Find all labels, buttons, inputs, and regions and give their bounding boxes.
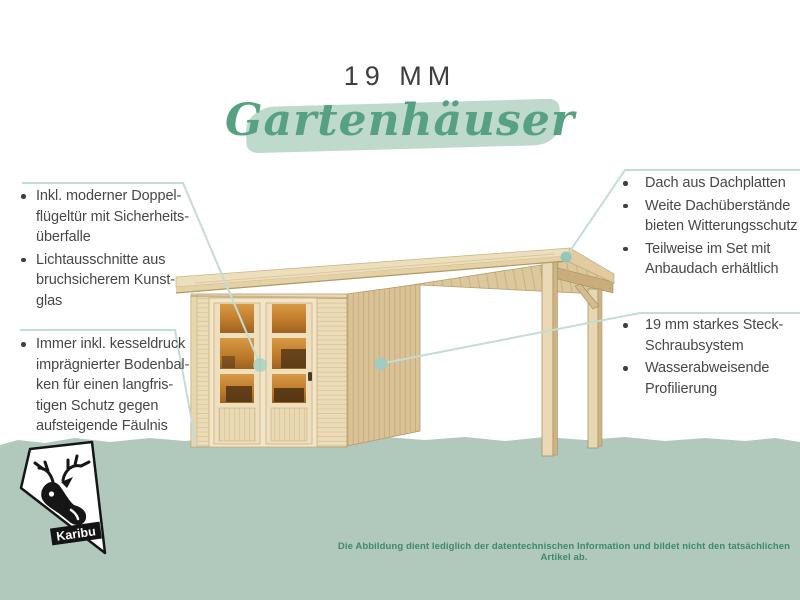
bullet-dot-icon bbox=[618, 173, 645, 194]
callout-dot-sidewall bbox=[375, 358, 388, 371]
feature-line: Dach aus Dachplatten bbox=[645, 175, 786, 191]
feature-line: Wasserabweisende bbox=[645, 360, 769, 376]
feature-text: 19 mm starkes Steck- Schraubsystem bbox=[645, 315, 783, 356]
feature-line: Inkl. moderner Doppel- bbox=[36, 188, 181, 204]
callout-left-top: Inkl. moderner Doppel- flügeltür mit Sic… bbox=[16, 186, 216, 313]
feature-line: aufsteigende Fäulnis bbox=[36, 418, 168, 434]
ground-band bbox=[0, 437, 800, 600]
feature-text: Wasserabweisende Profilierung bbox=[645, 358, 769, 399]
disclaimer-text: Die Abbildung dient lediglich der datent… bbox=[334, 541, 794, 563]
bullet-dot-icon bbox=[618, 239, 645, 280]
infographic-canvas: Karibu 19 MM Gartenhäuser Inkl. moderner… bbox=[0, 0, 800, 600]
feature-line: Schraubsystem bbox=[645, 338, 744, 354]
bullet-dot-icon bbox=[618, 315, 645, 356]
glass-interior-shadow bbox=[222, 356, 235, 368]
feature-text: Teilweise im Set mit Anbaudach erhältlic… bbox=[645, 239, 778, 280]
feature-item: 19 mm starkes Steck- Schraubsystem bbox=[618, 315, 800, 356]
feature-line: bruchsicherem Kunst- bbox=[36, 272, 175, 288]
door-handle-icon bbox=[308, 372, 312, 381]
feature-text: Dach aus Dachplatten bbox=[645, 173, 786, 194]
door-glass-pane bbox=[272, 304, 306, 333]
feature-text: Lichtausschnitte aus bruchsicherem Kunst… bbox=[36, 250, 175, 312]
feature-line: Lichtausschnitte aus bbox=[36, 252, 165, 268]
glass-interior-shadow bbox=[226, 386, 252, 402]
garden-shed-illustration bbox=[176, 248, 614, 456]
header-size-label: 19 MM bbox=[0, 61, 800, 92]
feature-line: Immer inkl. kesseldruck bbox=[36, 336, 185, 352]
feature-text: Inkl. moderner Doppel- flügeltür mit Sic… bbox=[36, 186, 189, 248]
feature-line: Profilierung bbox=[645, 381, 717, 397]
feature-line: imprägnierter Bodenbal- bbox=[36, 357, 189, 373]
bullet-dot-icon bbox=[16, 186, 36, 248]
feature-line: ken für einen langfris- bbox=[36, 377, 173, 393]
feature-item: Teilweise im Set mit Anbaudach erhältlic… bbox=[618, 239, 800, 280]
callout-left-bottom: Immer inkl. kesseldruck imprägnierter Bo… bbox=[16, 334, 216, 439]
callout-dot-door bbox=[253, 358, 267, 372]
glass-interior-shadow bbox=[281, 349, 306, 368]
feature-item: Dach aus Dachplatten bbox=[618, 173, 800, 194]
page-title: Gartenhäuser bbox=[0, 95, 800, 146]
feature-item: Wasserabweisende Profilierung bbox=[618, 358, 800, 399]
feature-text: Weite Dachüberstände bieten Witterungssc… bbox=[645, 196, 797, 237]
feature-line: glas bbox=[36, 293, 62, 309]
bullet-dot-icon bbox=[618, 196, 645, 237]
feature-line: Weite Dachüberstände bbox=[645, 198, 790, 214]
feature-line: überfalle bbox=[36, 229, 91, 245]
feature-item: Inkl. moderner Doppel- flügeltür mit Sic… bbox=[16, 186, 216, 248]
feature-line: Teilweise im Set mit bbox=[645, 241, 770, 257]
feature-text: Immer inkl. kesseldruck imprägnierter Bo… bbox=[36, 334, 189, 437]
door-bottom-panel bbox=[271, 408, 307, 441]
glass-interior-shadow bbox=[274, 388, 304, 402]
callout-dot-roof bbox=[561, 252, 572, 263]
canopy-post-front bbox=[542, 262, 558, 456]
feature-item: Immer inkl. kesseldruck imprägnierter Bo… bbox=[16, 334, 216, 437]
feature-item: Lichtausschnitte aus bruchsicherem Kunst… bbox=[16, 250, 216, 312]
feature-line: bieten Witterungsschutz bbox=[645, 218, 797, 234]
feature-item: Weite Dachüberstände bieten Witterungssc… bbox=[618, 196, 800, 237]
bullet-dot-icon bbox=[16, 250, 36, 312]
door-bottom-panel bbox=[219, 408, 255, 441]
canopy-post-rear bbox=[588, 289, 602, 448]
callout-right-bottom: 19 mm starkes Steck- Schraubsystem Wasse… bbox=[618, 315, 800, 401]
bullet-dot-icon bbox=[16, 334, 36, 437]
double-door bbox=[209, 298, 317, 447]
feature-line: 19 mm starkes Steck- bbox=[645, 317, 783, 333]
bullet-dot-icon bbox=[618, 358, 645, 399]
callout-right-top: Dach aus Dachplatten Weite Dachüberständ… bbox=[618, 173, 800, 282]
feature-line: flügeltür mit Sicherheits- bbox=[36, 209, 189, 225]
feature-line: tigen Schutz gegen bbox=[36, 398, 158, 414]
feature-line: Anbaudach erhältlich bbox=[645, 261, 778, 277]
